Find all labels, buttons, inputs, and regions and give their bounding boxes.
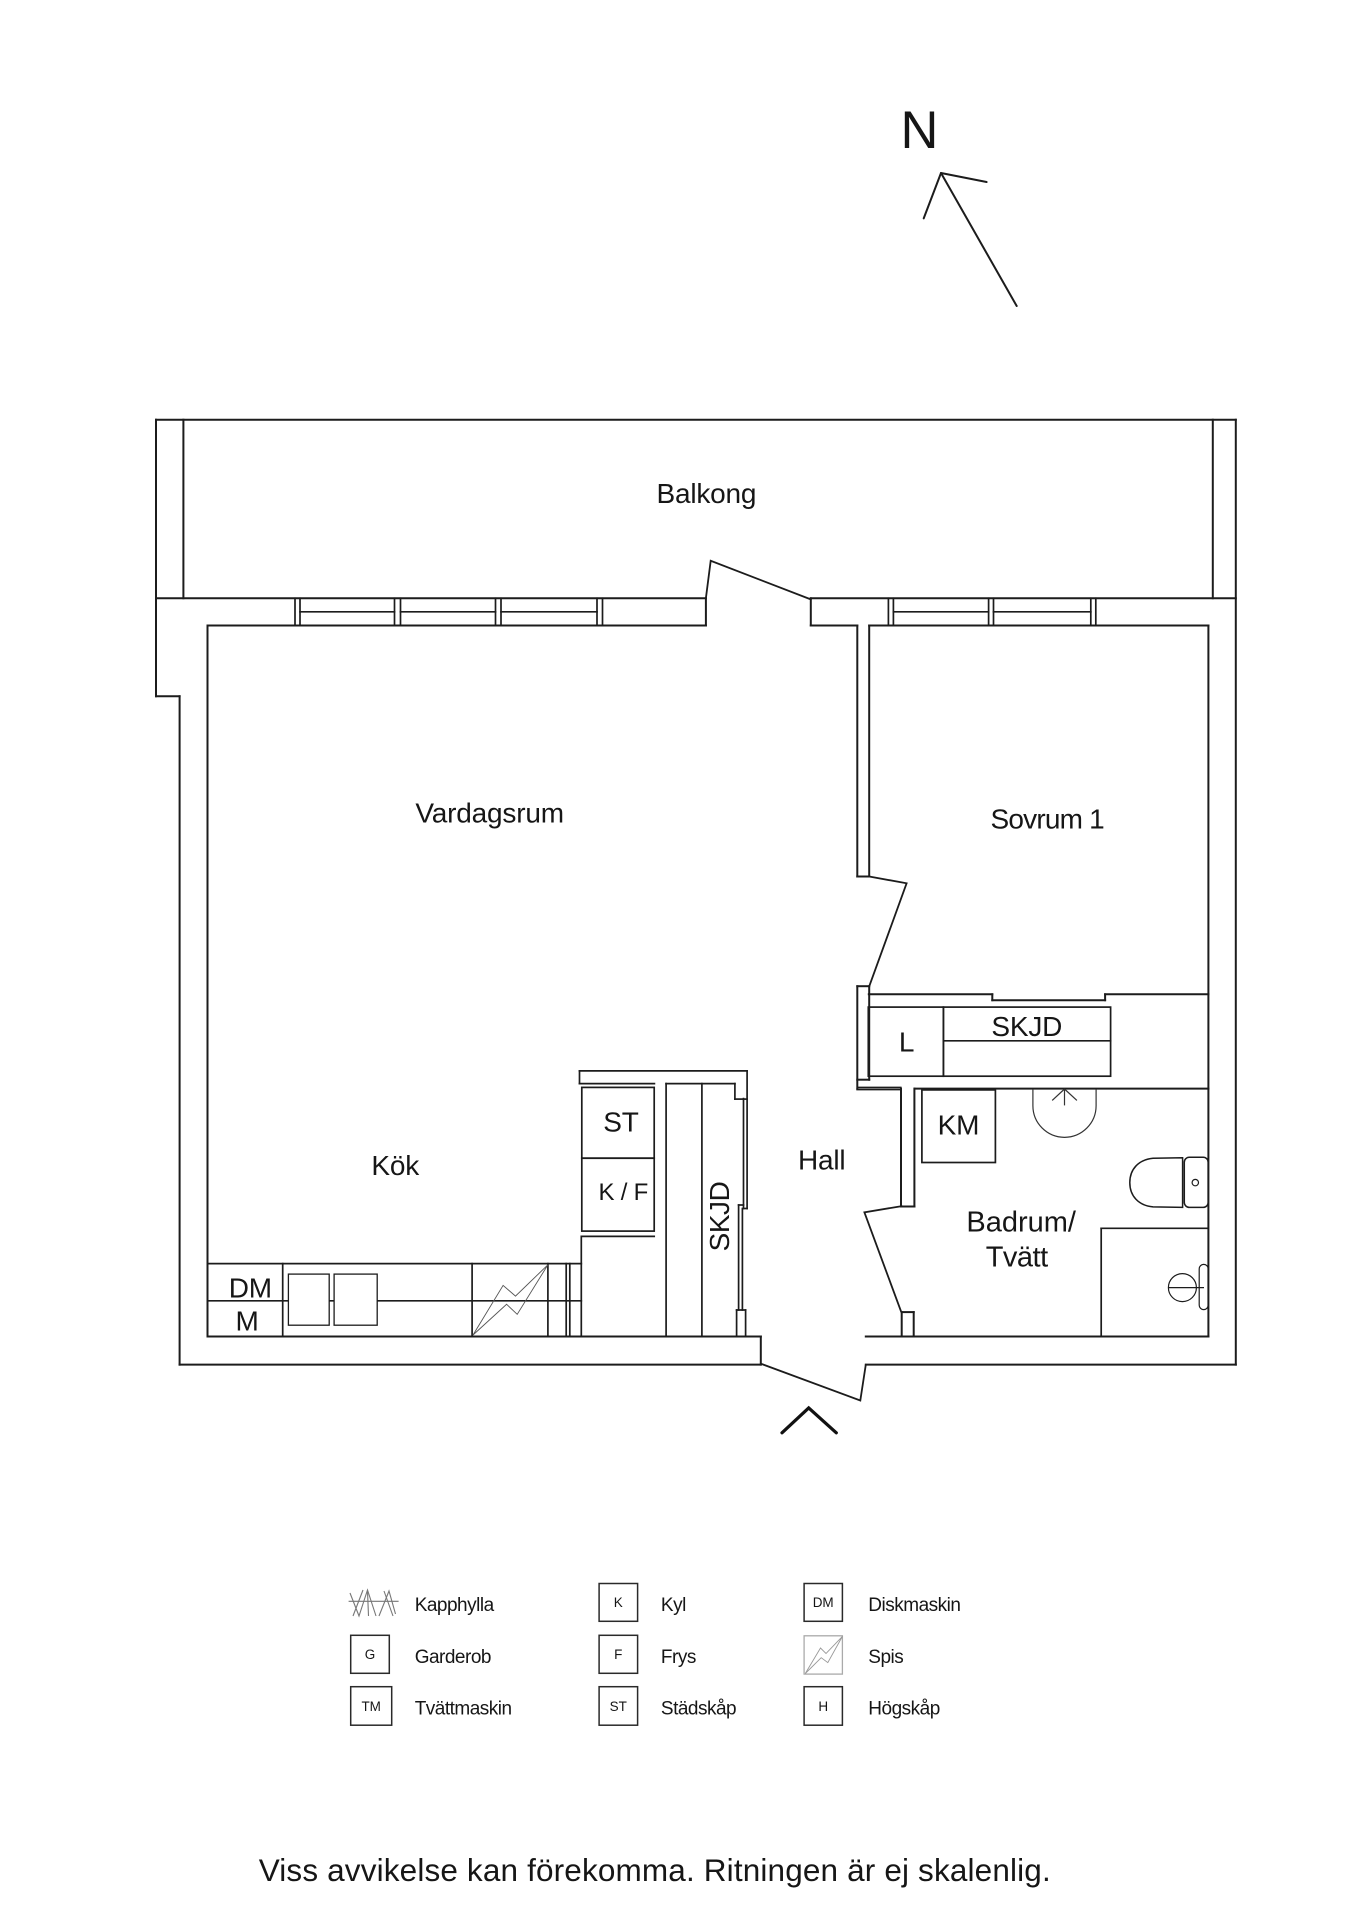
- svg-text:ST: ST: [603, 1107, 638, 1138]
- svg-text:Hall: Hall: [798, 1144, 845, 1175]
- svg-text:F: F: [614, 1647, 622, 1662]
- svg-text:Kök: Kök: [371, 1150, 420, 1181]
- svg-text:G: G: [365, 1647, 376, 1662]
- svg-text:Städskåp: Städskåp: [661, 1699, 736, 1720]
- svg-text:Tvättmaskin: Tvättmaskin: [415, 1699, 512, 1720]
- svg-text:Balkong: Balkong: [657, 478, 757, 509]
- svg-text:Spis: Spis: [868, 1647, 903, 1668]
- svg-text:TM: TM: [361, 1699, 381, 1714]
- svg-text:DM: DM: [229, 1273, 272, 1304]
- svg-text:K / F: K / F: [598, 1179, 648, 1206]
- svg-text:SKJD: SKJD: [991, 1011, 1062, 1042]
- svg-text:Sovrum 1: Sovrum 1: [991, 804, 1105, 835]
- svg-text:L: L: [899, 1027, 914, 1058]
- svg-text:Tvätt: Tvätt: [986, 1242, 1048, 1274]
- svg-text:Badrum/: Badrum/: [966, 1207, 1077, 1239]
- svg-text:K: K: [614, 1595, 623, 1610]
- svg-text:DM: DM: [813, 1595, 834, 1610]
- svg-text:Diskmaskin: Diskmaskin: [868, 1595, 960, 1616]
- svg-text:Kapphylla: Kapphylla: [415, 1595, 495, 1616]
- svg-text:H: H: [818, 1699, 828, 1714]
- svg-text:Viss avvikelse kan förekomma.: Viss avvikelse kan förekomma. Ritningen …: [259, 1852, 1051, 1888]
- svg-text:M: M: [235, 1306, 258, 1337]
- svg-text:Frys: Frys: [661, 1647, 696, 1668]
- svg-text:ST: ST: [610, 1699, 627, 1714]
- svg-text:Garderob: Garderob: [415, 1647, 491, 1668]
- svg-text:Högskåp: Högskåp: [868, 1699, 940, 1720]
- svg-text:Vardagsrum: Vardagsrum: [415, 798, 563, 829]
- svg-text:Kyl: Kyl: [661, 1595, 686, 1616]
- svg-text:N: N: [901, 101, 939, 160]
- svg-text:KM: KM: [938, 1109, 980, 1140]
- svg-text:SKJD: SKJD: [704, 1182, 735, 1252]
